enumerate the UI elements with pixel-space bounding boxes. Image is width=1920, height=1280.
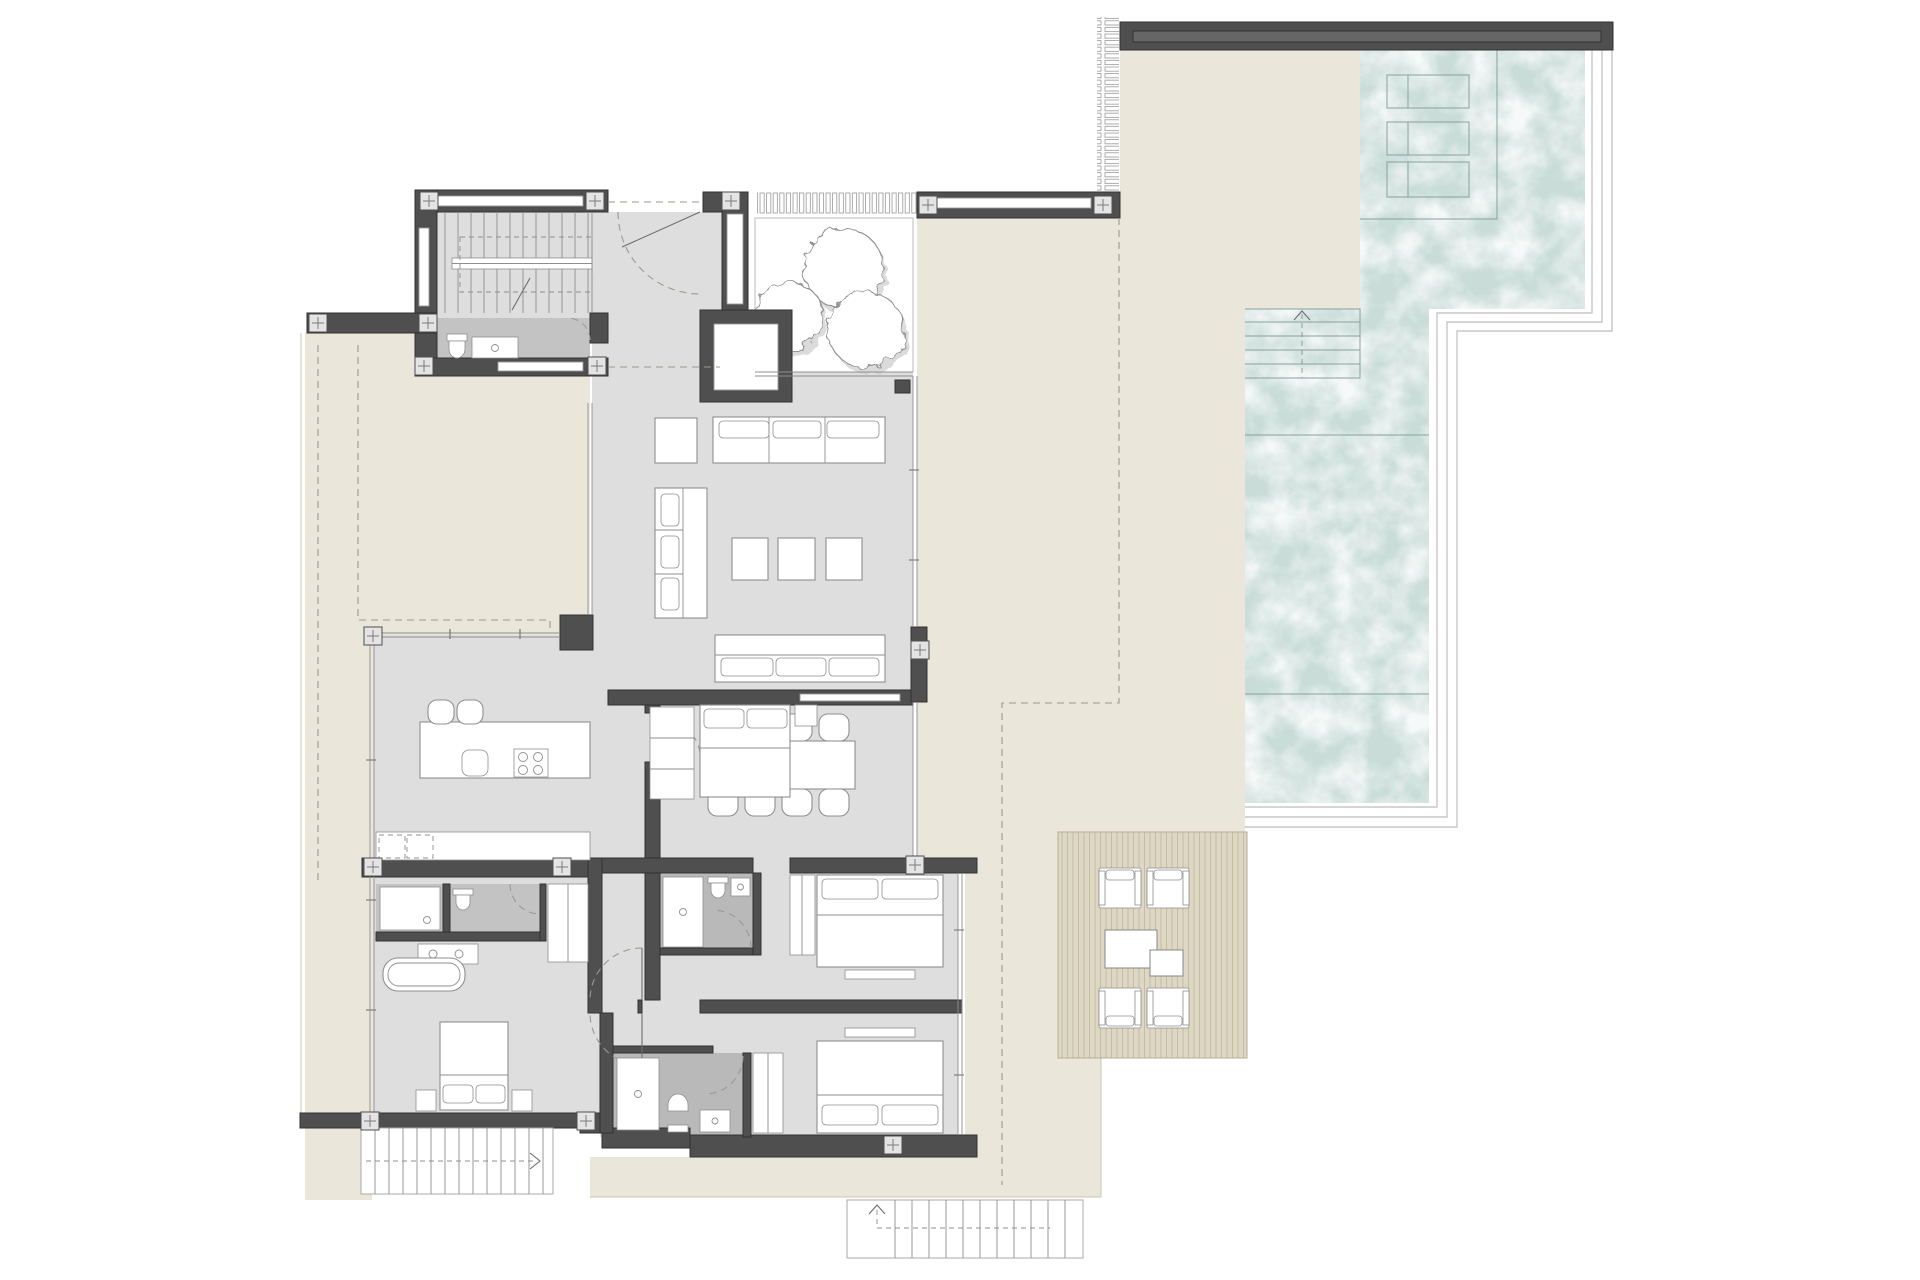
louver-screen-horizontal — [757, 191, 917, 214]
kitchen-island — [420, 722, 590, 778]
kitchen-counter — [376, 832, 590, 860]
pillow — [747, 709, 787, 728]
basin — [731, 878, 750, 896]
toilet-icon — [449, 341, 465, 358]
deck-armchair — [1099, 868, 1141, 908]
ottoman — [778, 538, 815, 580]
pillow — [476, 1085, 505, 1103]
shower — [380, 887, 440, 930]
pillow — [882, 879, 938, 899]
sink — [462, 750, 488, 776]
vanity — [472, 337, 518, 358]
bench — [845, 1028, 915, 1037]
deck-table — [1150, 950, 1183, 976]
nightstand — [512, 1090, 532, 1111]
louver-screen-vertical — [1097, 17, 1119, 192]
dining-chair — [819, 789, 849, 816]
shower — [617, 1058, 659, 1130]
deck-armchair — [1147, 868, 1189, 908]
ottoman — [732, 538, 768, 580]
wardrobe — [650, 707, 694, 799]
basin — [700, 1110, 730, 1132]
bench — [845, 970, 915, 979]
deck-armchair — [1099, 988, 1141, 1028]
pillow — [882, 1105, 938, 1125]
shower — [663, 877, 703, 947]
pillow — [822, 1105, 878, 1125]
pillar — [911, 627, 927, 702]
floor-plan-canvas — [0, 0, 1920, 1280]
pillow — [443, 1085, 473, 1103]
wood-deck — [1058, 832, 1247, 1058]
exterior-staircase-left — [361, 1128, 553, 1194]
ottoman — [826, 538, 862, 580]
exterior-staircase-bottom — [847, 1200, 1083, 1258]
powder-room-fixtures — [447, 334, 518, 358]
toilet-icon — [456, 895, 470, 910]
dining-chair — [819, 714, 849, 741]
toilet-icon — [711, 883, 725, 898]
closet — [790, 875, 815, 955]
pillar — [895, 380, 910, 393]
nightstand — [795, 705, 817, 726]
nightstand — [416, 1090, 436, 1111]
deck-table — [1105, 930, 1157, 968]
bar-stool — [428, 700, 454, 724]
pillow — [704, 709, 744, 728]
floor-plan — [0, 0, 1920, 1280]
deck-armchair — [1147, 988, 1189, 1028]
bar-stool — [457, 700, 483, 724]
pillow — [822, 879, 878, 899]
